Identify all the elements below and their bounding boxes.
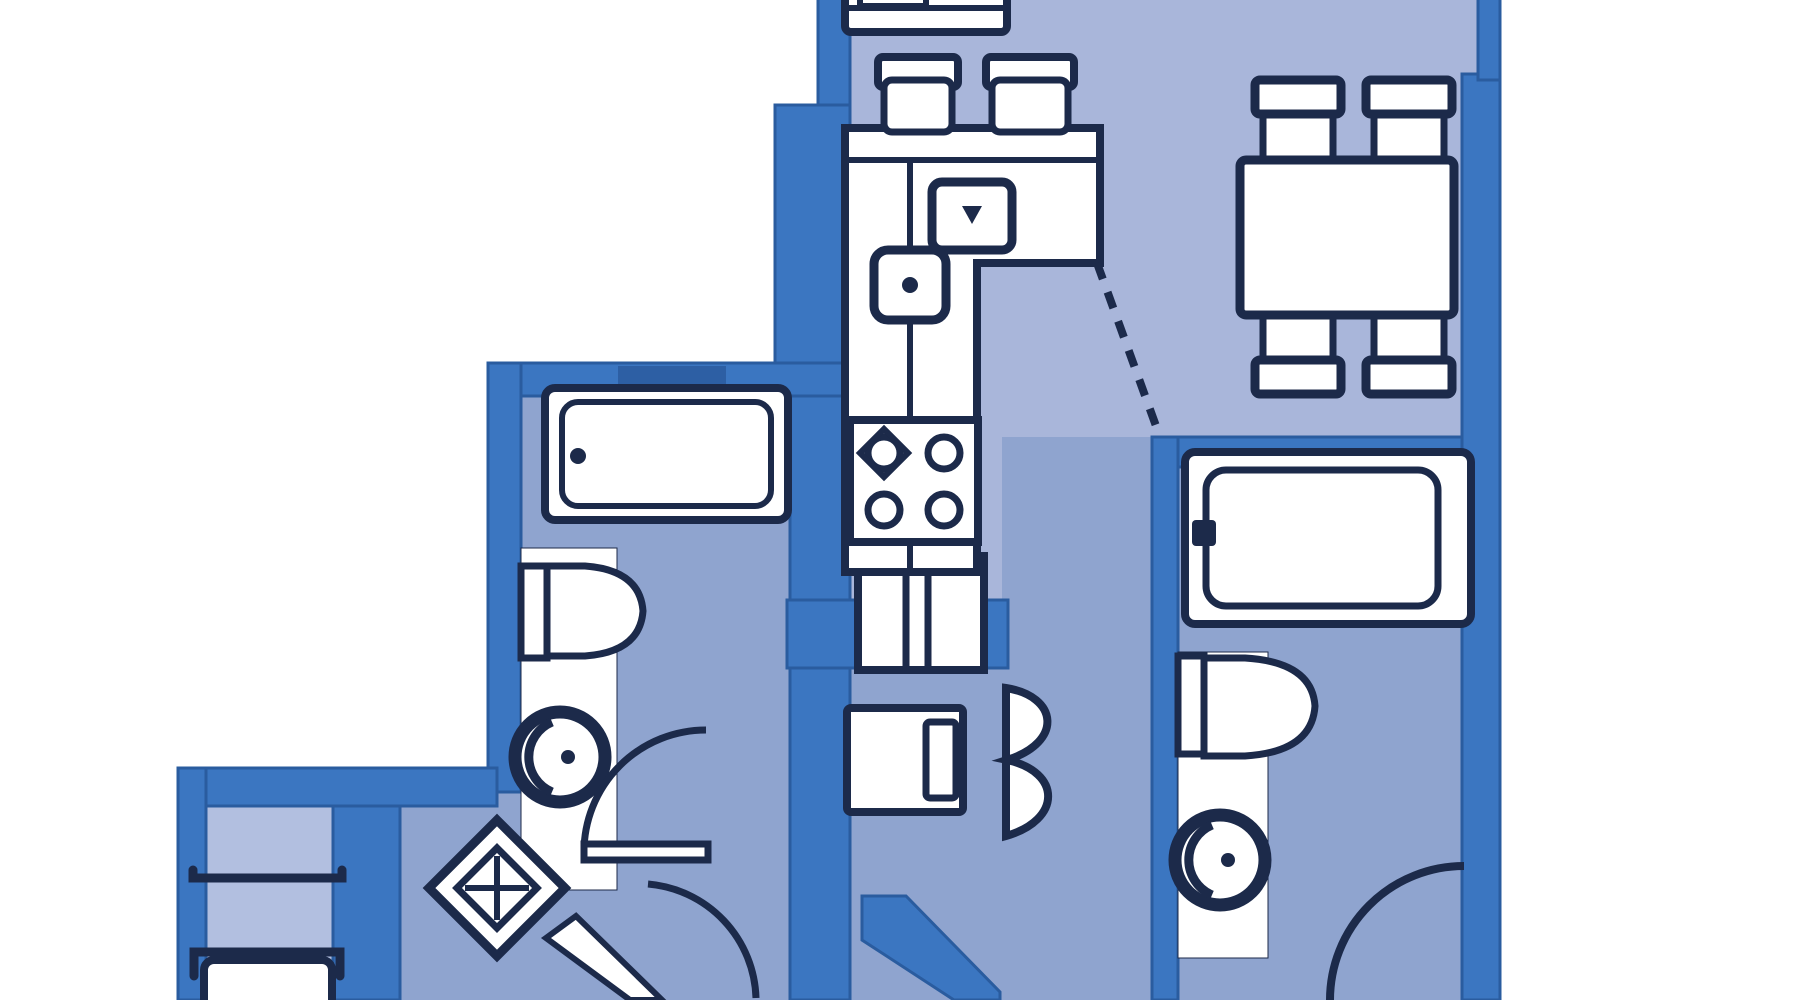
bathtub-faucet (1192, 520, 1216, 546)
bathtub-right (1185, 452, 1471, 624)
wall-bedroom-top (200, 768, 497, 806)
refrigerator-appliance (845, 0, 1007, 32)
footboard-furniture (204, 960, 332, 1000)
dining-chair-top-right (1366, 80, 1452, 166)
washbasin-right (1175, 815, 1265, 905)
floor-plan-canvas (0, 0, 1800, 1000)
toilet-tank (521, 566, 547, 658)
washing-machine (847, 708, 963, 812)
toilet-tank (1178, 656, 1204, 754)
dining-table (1240, 160, 1454, 315)
wall-kitchen-left-wide (775, 105, 850, 372)
washbasin-left (515, 712, 605, 802)
chair-back (1255, 360, 1341, 394)
dining-chair-top-left (1255, 80, 1341, 166)
bathtub-drain (570, 448, 586, 464)
basin-drain (561, 750, 575, 764)
chair-back (1366, 80, 1452, 114)
dining-chair-bottom-left (1255, 308, 1341, 394)
toilet-right (1178, 656, 1315, 756)
toilet-bowl (1204, 658, 1315, 756)
bar-stool-2 (986, 57, 1074, 132)
wall-bathroom-left-west (488, 363, 521, 792)
basin-drain (1221, 853, 1235, 867)
bar-stool-1 (878, 57, 958, 132)
stove (850, 420, 978, 542)
cooktop-dot (902, 277, 918, 293)
bathtub-left (545, 388, 788, 520)
floor-plan-svg (0, 0, 1800, 1000)
chair-back (1366, 360, 1452, 394)
bathtub-outer (1185, 452, 1471, 624)
stool-seat (884, 80, 952, 132)
toilet-left (521, 566, 643, 658)
door-leaf (584, 844, 708, 860)
wall-bathroom-right-west (1152, 437, 1178, 1000)
stool-seat (992, 80, 1068, 132)
wall-outer-right-top-step (1478, 0, 1500, 80)
chair-back (1255, 80, 1341, 114)
toilet-bowl (547, 566, 643, 656)
dining-chair-bottom-right (1366, 308, 1452, 394)
